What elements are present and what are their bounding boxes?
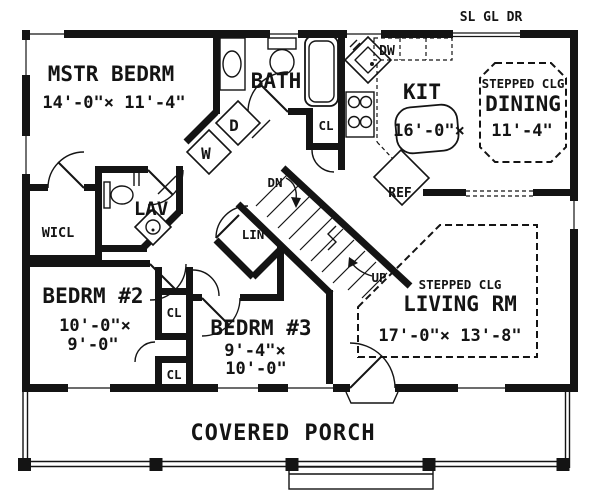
window (458, 384, 505, 392)
window (22, 40, 30, 75)
steps-outline (289, 467, 433, 489)
toilet-tank (268, 38, 296, 49)
window (347, 30, 381, 38)
wall-closet-divider-3 (155, 356, 193, 363)
porch-post (150, 458, 163, 471)
living-dims: 17'-0"× 13'-8" (378, 326, 521, 346)
porch-post (286, 458, 299, 471)
counter-edge (377, 142, 393, 159)
wall-bedroom3-right (326, 290, 333, 384)
sliding-glass-door (453, 30, 520, 38)
upper-closet-door-arc (193, 270, 219, 296)
kitchen-faucet (350, 40, 357, 47)
wall-bedroom3-top-a (186, 294, 202, 301)
hall-closet-door-arc (312, 150, 334, 172)
bedroom2-label: BEDRM #2 (42, 284, 143, 308)
kitchen-dims: 16'-0"× (393, 121, 465, 141)
window (68, 384, 110, 392)
wall-wicl-right (95, 166, 102, 262)
bathtub-inner (309, 41, 334, 102)
stove-burner (349, 117, 360, 128)
stove-burner (361, 97, 372, 108)
labels: SL GL DR MSTR BEDRM 14'-0"× 11'-4" BATH … (42, 10, 565, 446)
bedroom3-label: BEDRM #3 (210, 316, 311, 340)
bedroom3-dims2: 10'-0" (225, 359, 286, 379)
bath-label: BATH (251, 69, 302, 93)
porch-post (557, 458, 570, 471)
master-bedroom-dims: 14'-0"× 11'-4" (42, 93, 185, 113)
living-label: LIVING RM (403, 292, 517, 316)
wall-kitchen-living-b (533, 189, 571, 196)
upper-closet-label: CL (166, 305, 182, 320)
lower-closet-label: CL (166, 367, 182, 382)
kitchen-sink-drain (370, 62, 374, 66)
linen-label: LIN (242, 227, 265, 242)
lav-label: LAV (134, 198, 168, 220)
wall-lav-bottom (102, 245, 147, 252)
wall-closet-divider-2 (155, 333, 193, 340)
window (570, 201, 578, 229)
wall-bedroom2-top (22, 260, 150, 267)
laundry-door-flap (158, 176, 176, 194)
lav-sink-backsplash (104, 182, 110, 208)
stairs-up-label: UP (371, 270, 386, 285)
bedroom2-door-leaf (150, 264, 176, 290)
porch-steps (289, 467, 433, 489)
window (218, 384, 258, 392)
bedroom2-dims1: 10'-0"× (59, 316, 131, 336)
master-bedroom-label: MSTR BEDRM (48, 62, 174, 86)
porch-post (423, 458, 436, 471)
refrigerator-label: REF (388, 186, 412, 201)
dining-label: DINING (485, 92, 561, 116)
lav-sink (111, 186, 133, 204)
porch-label: COVERED PORCH (190, 421, 375, 446)
window (288, 384, 333, 392)
wall-master-bottom-a (22, 184, 48, 191)
dishwasher-label: DW (379, 44, 395, 59)
linen-door-leaf (216, 215, 239, 238)
bedroom2-dims2: 9'-0" (67, 335, 118, 355)
stove-burner (361, 117, 372, 128)
window (270, 30, 298, 38)
walkin-closet-label: WICL (42, 225, 75, 241)
stairs-down-label: DN (267, 175, 282, 190)
lav-toilet-drain (152, 229, 155, 232)
floor-plan-sheet: SL GL DR MSTR BEDRM 14'-0"× 11'-4" BATH … (0, 0, 600, 497)
bedroom3-dims1: 9'-4"× (224, 341, 285, 361)
wall-kitchen-living-a (423, 189, 466, 196)
wall-closet-left-a (155, 267, 162, 340)
wall-master-right (213, 30, 220, 114)
vanity-sink (223, 51, 241, 77)
living-ceiling-label: STEPPED CLG (419, 277, 502, 292)
wall-lav-top (102, 166, 148, 173)
porch-posts (18, 458, 570, 471)
window (30, 30, 64, 38)
front-door-threshold (346, 392, 398, 403)
master-door-leaf (58, 162, 84, 188)
porch-post (18, 458, 31, 471)
dryer-label: D (229, 116, 239, 135)
lower-closet-door-arc (135, 342, 155, 362)
wall-hall-closet-bottom (306, 143, 345, 150)
dining-ceiling-label: STEPPED CLG (482, 76, 565, 91)
floor-plan-drawing: SL GL DR MSTR BEDRM 14'-0"× 11'-4" BATH … (0, 0, 600, 497)
kitchen-label: KIT (403, 80, 441, 104)
dining-dims: 11'-4" (491, 121, 552, 141)
wall-outer-left (22, 30, 30, 392)
sliding-door-label: SL GL DR (460, 10, 523, 25)
washer-label: W (201, 144, 211, 163)
wall-bedroom3-left (186, 267, 193, 384)
wall-bedroom3-top-b (240, 294, 281, 301)
front-door-leaf (350, 356, 382, 388)
bathtub (305, 36, 338, 106)
linen-closet (216, 240, 285, 277)
hall-closet-label: CL (318, 118, 334, 133)
stairs-up-arrowhead (348, 257, 358, 268)
front-door-opening (350, 384, 395, 392)
stove-burner (349, 97, 360, 108)
linen-wall-sw (216, 240, 253, 277)
window (22, 136, 30, 174)
